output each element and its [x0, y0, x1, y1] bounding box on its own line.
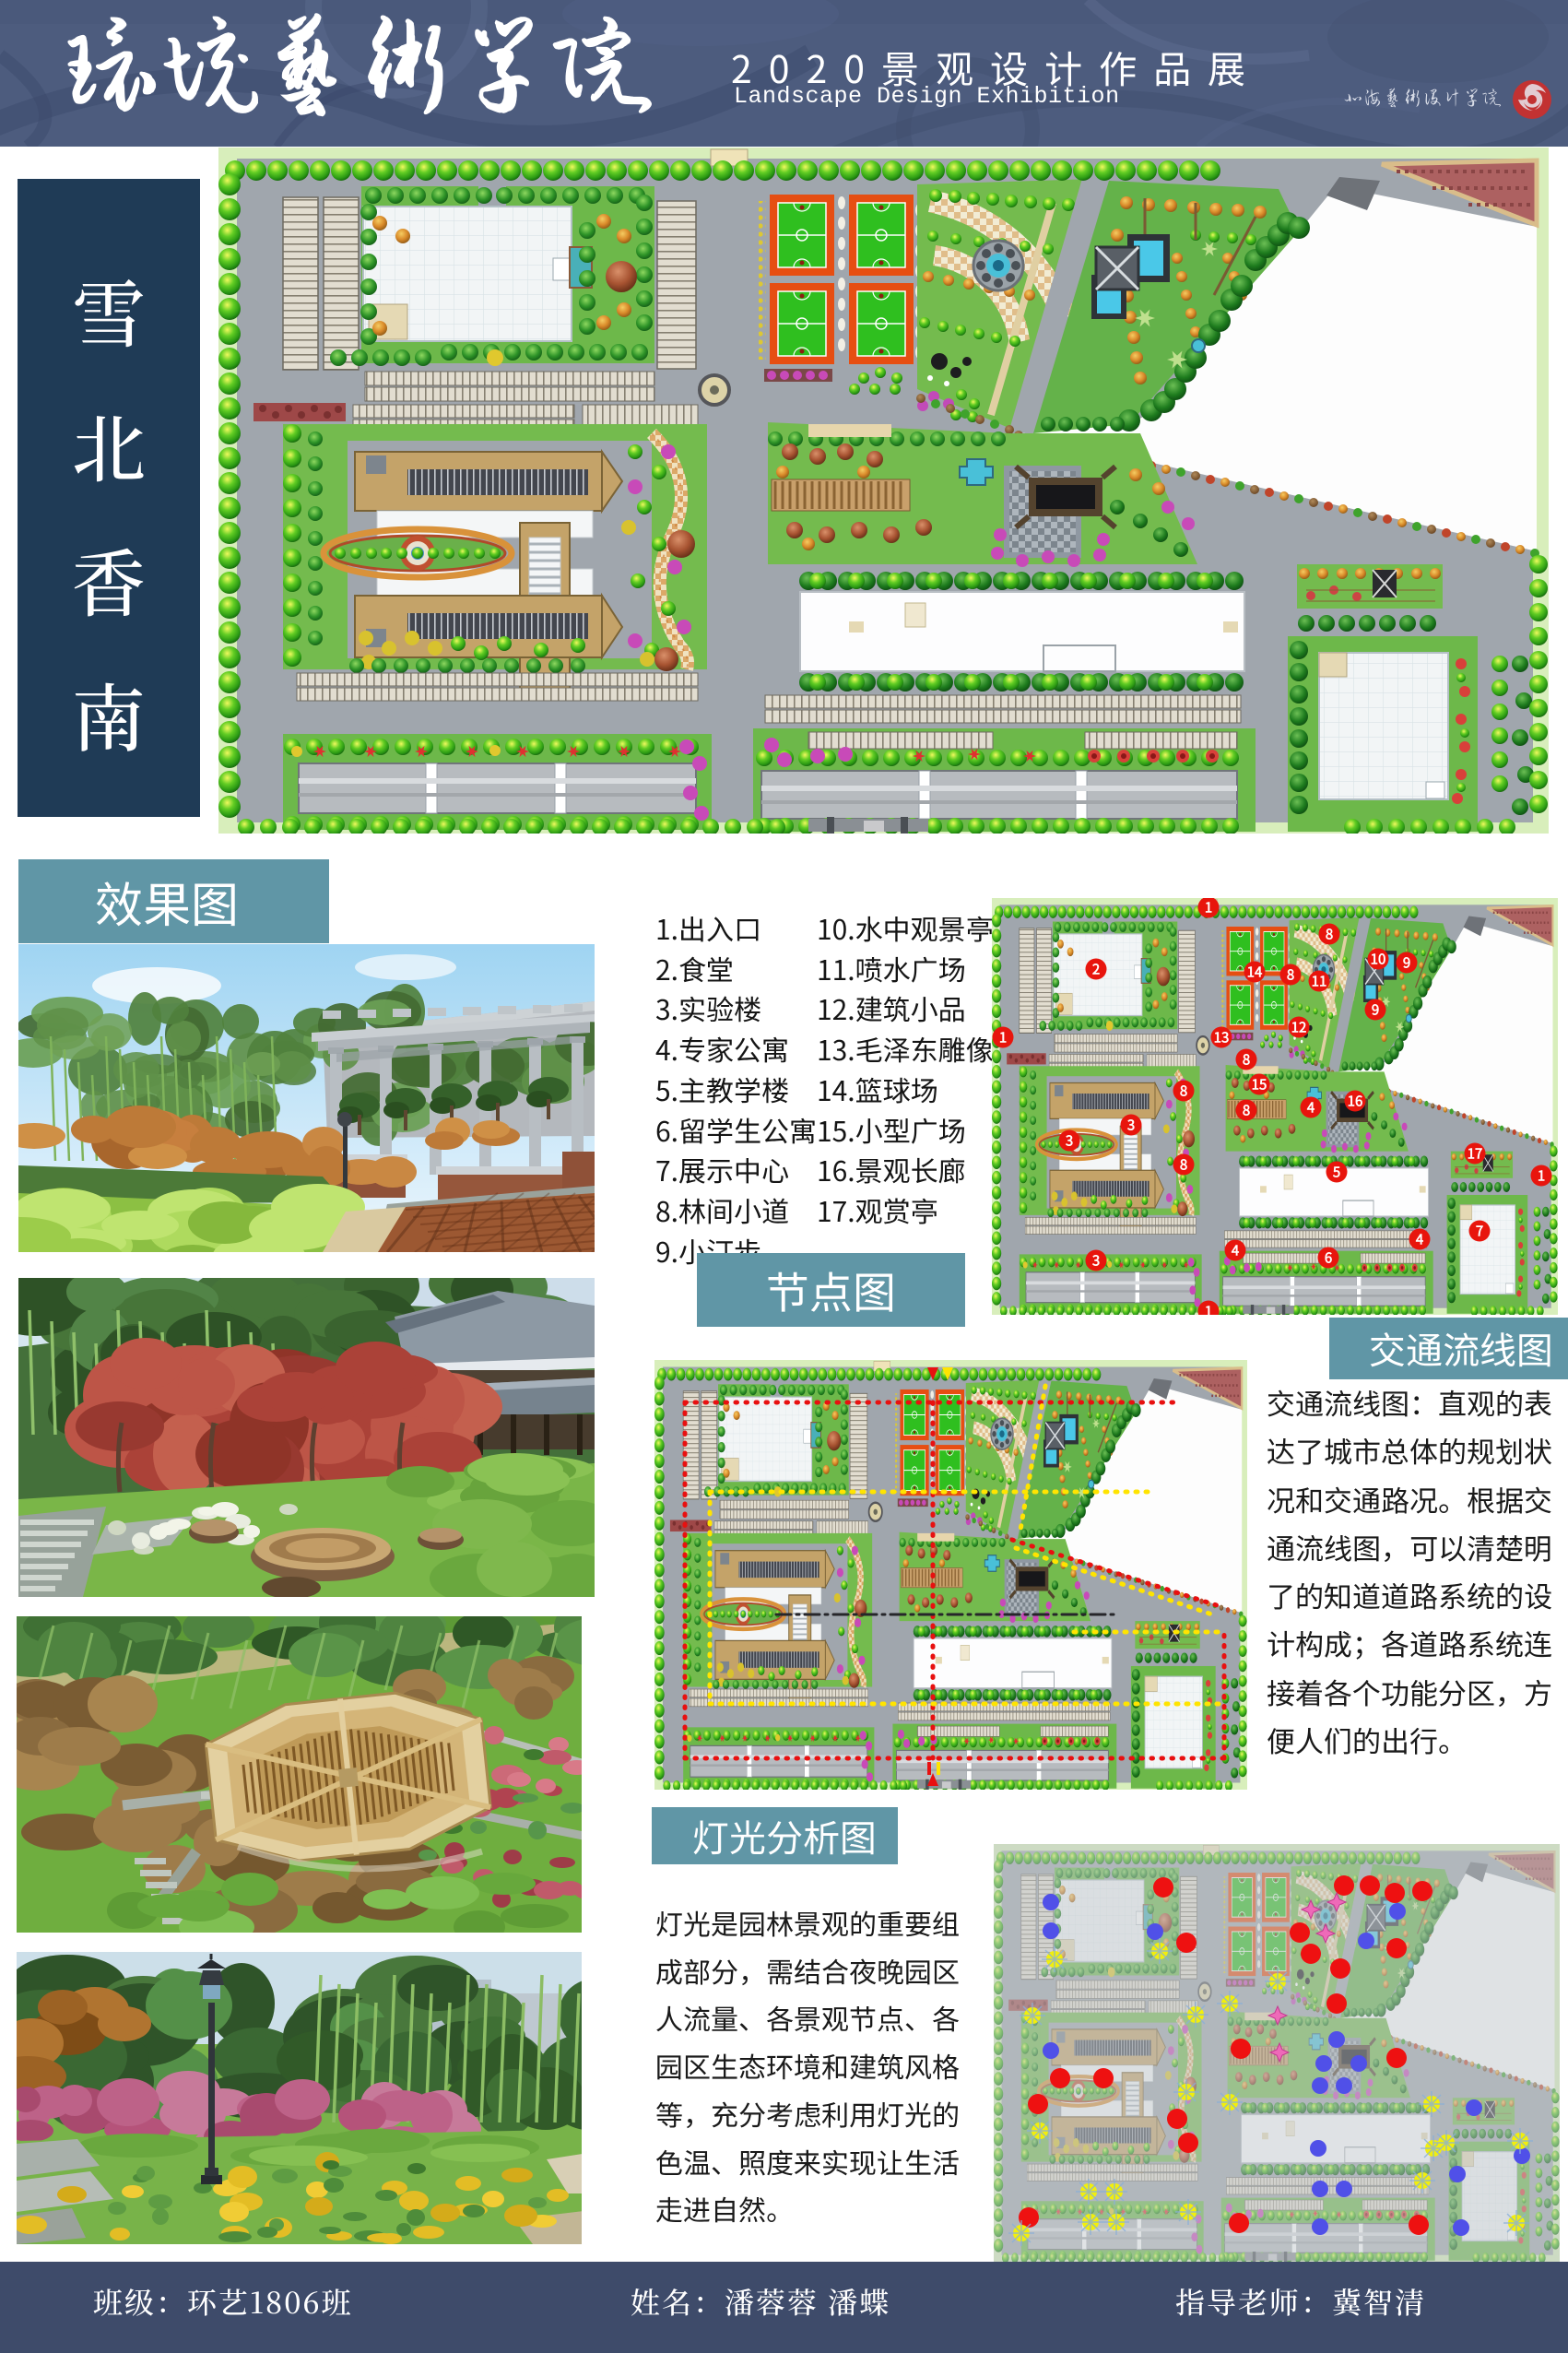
- svg-text:14: 14: [1247, 963, 1263, 982]
- svg-text:1: 1: [999, 1028, 1007, 1047]
- svg-text:16: 16: [1348, 1092, 1363, 1111]
- svg-text:4: 4: [1232, 1241, 1240, 1260]
- svg-text:9: 9: [1403, 953, 1410, 973]
- svg-text:9: 9: [1372, 1000, 1379, 1020]
- svg-text:3: 3: [1066, 1131, 1073, 1151]
- svg-text:3: 3: [1127, 1116, 1135, 1135]
- svg-text:8: 8: [1326, 925, 1333, 944]
- svg-text:8: 8: [1287, 965, 1294, 985]
- svg-text:13: 13: [1214, 1028, 1230, 1047]
- svg-text:7: 7: [1476, 1222, 1483, 1241]
- svg-text:15: 15: [1252, 1075, 1267, 1094]
- svg-text:17: 17: [1468, 1144, 1483, 1164]
- svg-text:1: 1: [1538, 1166, 1545, 1186]
- svg-text:5: 5: [1333, 1163, 1340, 1182]
- svg-text:8: 8: [1180, 1155, 1187, 1175]
- svg-text:1: 1: [1205, 898, 1212, 917]
- svg-text:12: 12: [1291, 1018, 1307, 1037]
- svg-text:4: 4: [1416, 1230, 1424, 1249]
- svg-text:6: 6: [1325, 1248, 1332, 1268]
- svg-text:3: 3: [1092, 1251, 1100, 1271]
- svg-text:1: 1: [1205, 1302, 1212, 1316]
- svg-text:2: 2: [1092, 960, 1100, 979]
- svg-text:8: 8: [1243, 1050, 1250, 1070]
- svg-text:4: 4: [1307, 1098, 1315, 1117]
- svg-text:8: 8: [1243, 1101, 1250, 1120]
- svg-text:8: 8: [1180, 1082, 1187, 1101]
- svg-text:11: 11: [1312, 972, 1327, 991]
- svg-text:10: 10: [1371, 950, 1386, 969]
